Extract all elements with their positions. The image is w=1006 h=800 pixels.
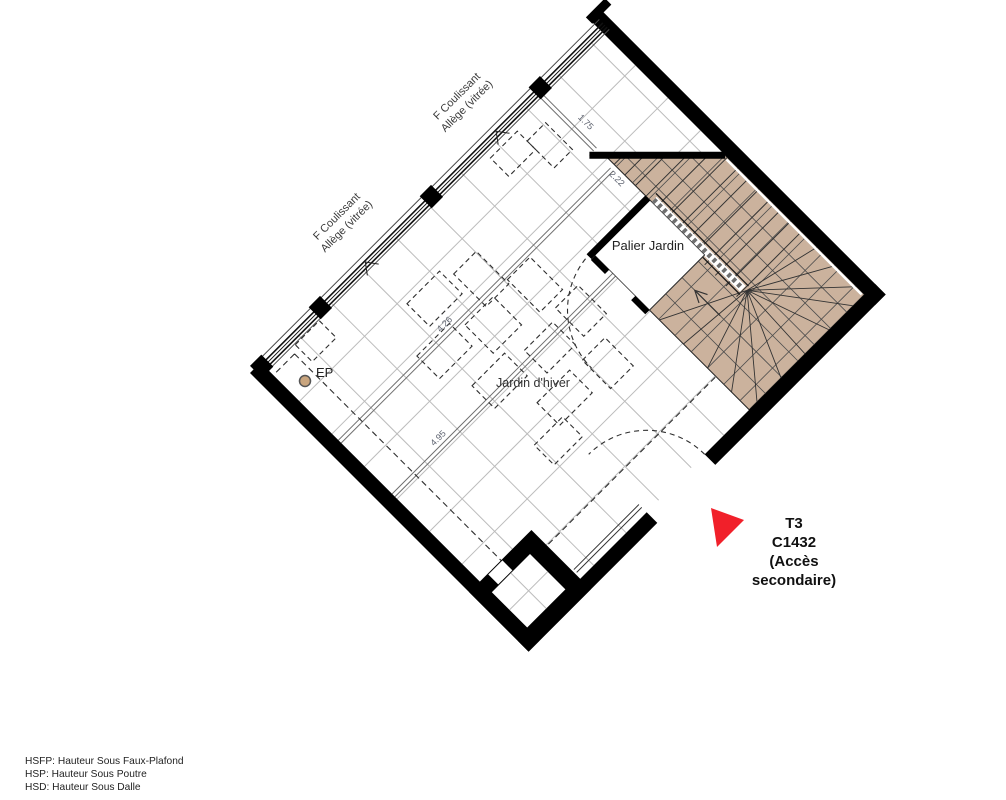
unit-access-line-2: secondaire) xyxy=(752,572,836,589)
access-arrow-icon xyxy=(711,508,744,547)
palier-jardin-label: Palier Jardin xyxy=(612,238,684,253)
dim-4-95: 4.95 xyxy=(428,428,447,447)
unit-access-line-1: (Accès xyxy=(769,553,818,570)
legend-hsd: HSD: Hauteur Sous Dalle xyxy=(25,782,141,793)
floor-plan-canvas: 1.75 2.22 4.26 4.95 F Coulissant Allège … xyxy=(0,0,1006,800)
ep-label: EP xyxy=(316,365,333,380)
unit-access-marker: T3 C1432 (Accès secondaire) xyxy=(711,508,836,589)
ep-downpipe-dot xyxy=(300,376,311,387)
wall-lower-left xyxy=(250,362,539,651)
unit-number: C1432 xyxy=(772,534,816,551)
dim-1-75: 1.75 xyxy=(576,112,595,131)
unit-type: T3 xyxy=(785,515,803,532)
legend-hsp: HSP: Hauteur Sous Poutre xyxy=(25,769,147,780)
window-wall-labels: F Coulissant Allège (vitrée) F Coulissan… xyxy=(309,68,496,255)
legend-hsfp: HSFP: Hauteur Sous Faux-Plafond xyxy=(25,756,184,767)
jardin-dhiver-label: Jardin d'hiver xyxy=(496,376,570,390)
floor-plan-page: 1.75 2.22 4.26 4.95 F Coulissant Allège … xyxy=(0,0,1006,800)
abbreviation-legend: HSFP: Hauteur Sous Faux-Plafond HSP: Hau… xyxy=(25,756,184,793)
dim-4-26: 4.26 xyxy=(435,314,454,333)
